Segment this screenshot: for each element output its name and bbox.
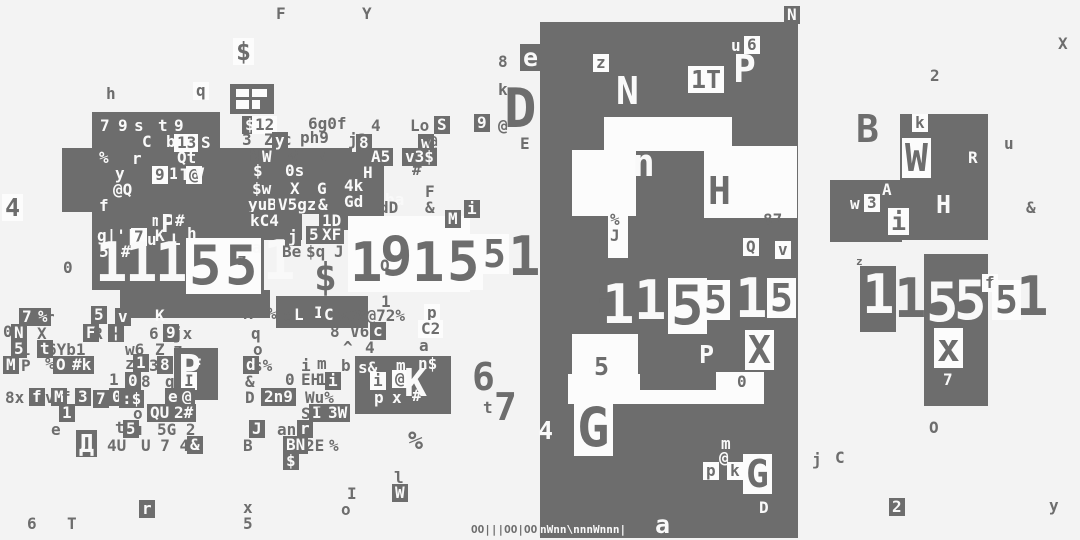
glyph: 0 bbox=[285, 372, 295, 388]
glyph: n bbox=[632, 144, 655, 182]
blob-hole-rect bbox=[252, 89, 267, 97]
glyph: kC4 bbox=[247, 212, 282, 230]
glyph: t bbox=[483, 400, 493, 416]
glyph: Y bbox=[362, 6, 372, 22]
glyph: D bbox=[504, 82, 537, 136]
glyph: $ bbox=[283, 452, 299, 470]
glyph: 1 bbox=[59, 404, 75, 422]
glyph: @ bbox=[498, 118, 508, 134]
glyph: u bbox=[1004, 136, 1014, 152]
glyph: z bbox=[237, 252, 247, 268]
glyph: O bbox=[53, 356, 69, 374]
glyph: C bbox=[835, 450, 845, 466]
glyph: 2 bbox=[889, 498, 905, 516]
glyph: p bbox=[374, 390, 384, 406]
glyph: nWnn\nnnWnnn| bbox=[540, 524, 626, 535]
glyph: U 7 4 bbox=[141, 438, 189, 454]
glyph: 7 bbox=[494, 388, 517, 426]
glyph: V bbox=[195, 166, 205, 182]
glyph: 87 bbox=[763, 212, 782, 228]
glyph: 0s bbox=[282, 162, 307, 180]
glyph: s% bbox=[253, 358, 272, 374]
glyph: h bbox=[106, 86, 116, 102]
glyph: 1 bbox=[133, 354, 149, 372]
glyph: dD bbox=[379, 200, 398, 216]
glyph: Gd bbox=[344, 194, 363, 210]
glyph: 7 bbox=[943, 372, 953, 388]
glyph: R bbox=[243, 306, 253, 322]
glyph: C bbox=[142, 134, 152, 150]
glyph: 1 bbox=[1016, 270, 1049, 324]
glyph: Qt bbox=[177, 150, 196, 166]
glyph: j bbox=[812, 452, 822, 468]
glyph: O bbox=[929, 420, 939, 436]
glyph: 1 bbox=[109, 372, 119, 388]
glyph: z bbox=[593, 54, 609, 72]
glyph: 5 bbox=[767, 278, 796, 318]
glyph: e bbox=[520, 44, 541, 71]
glyph: 8 bbox=[330, 324, 340, 340]
glyph: A bbox=[882, 182, 892, 198]
glyph: Be bbox=[282, 244, 301, 260]
glyph: F bbox=[276, 6, 286, 22]
glyph: r bbox=[139, 500, 155, 518]
glyph: # bbox=[412, 388, 422, 404]
glyph: 3W bbox=[325, 404, 350, 422]
glyph: P bbox=[699, 342, 714, 367]
glyph: & bbox=[425, 200, 435, 216]
glyph: % bbox=[408, 428, 423, 453]
glyph: 0 bbox=[737, 374, 747, 390]
glyph: 9 bbox=[380, 230, 413, 284]
glyph: 1 bbox=[95, 236, 128, 290]
glyph: #k bbox=[69, 356, 94, 374]
glyph: 1T bbox=[688, 66, 724, 93]
glyph: % bbox=[329, 438, 339, 454]
glyph: N bbox=[616, 72, 639, 110]
glyph: 1 bbox=[155, 236, 188, 290]
glyph: p bbox=[703, 462, 719, 480]
glyph: 5 bbox=[186, 238, 225, 294]
glyph: i bbox=[464, 200, 480, 218]
glyph: H bbox=[708, 172, 731, 210]
glyph: P bbox=[178, 350, 201, 388]
glyph: k bbox=[727, 462, 743, 480]
glyph: K bbox=[155, 308, 165, 324]
glyph: 3 bbox=[75, 388, 91, 406]
glyph: # bbox=[172, 212, 188, 230]
glyph: R bbox=[316, 148, 326, 164]
glyph: Lo bbox=[410, 118, 429, 134]
glyph: b bbox=[341, 358, 351, 374]
glyph: x bbox=[934, 328, 963, 368]
glyph: 4 bbox=[2, 194, 23, 221]
glyph: r bbox=[129, 150, 145, 168]
glyph: 1 bbox=[412, 236, 445, 290]
glyph: q bbox=[193, 82, 209, 100]
glyph: 1 bbox=[602, 278, 635, 332]
glyph: $ bbox=[250, 162, 266, 180]
glyph: Q bbox=[743, 238, 759, 256]
glyph: ^ bbox=[343, 340, 353, 356]
glyph: e bbox=[51, 422, 61, 438]
glyph: $ bbox=[233, 38, 254, 65]
glyph: 5 bbox=[243, 516, 253, 532]
glyph: 5 bbox=[91, 306, 107, 324]
glitch-canvas: FY$NX2hq8ekD@E9uBkWRu6PzN1T79st9Cb13S%rQ… bbox=[0, 0, 1080, 540]
glyph: 6 bbox=[27, 516, 37, 532]
glyph: X bbox=[1058, 36, 1068, 52]
glyph: 7 bbox=[100, 118, 110, 134]
glyph: 2n9 bbox=[261, 388, 296, 406]
glyph: $ bbox=[314, 258, 337, 296]
glyph: T bbox=[67, 516, 77, 532]
glyph: 9 bbox=[152, 166, 168, 184]
glyph: & bbox=[1026, 200, 1036, 216]
glyph: w bbox=[850, 196, 860, 212]
blob-hole-rect bbox=[572, 150, 636, 216]
glyph: M bbox=[445, 210, 461, 228]
glyph: L bbox=[291, 306, 307, 324]
glyph: J bbox=[610, 228, 620, 244]
glyph: G bbox=[743, 454, 772, 494]
glyph: 6 bbox=[472, 358, 495, 396]
glyph: y bbox=[1049, 498, 1059, 514]
glyph: S bbox=[198, 134, 214, 152]
glyph: D bbox=[759, 500, 769, 516]
glyph: 7 bbox=[93, 390, 109, 408]
blob-hole-rect bbox=[236, 89, 249, 97]
glyph: k bbox=[912, 114, 928, 132]
glyph: % bbox=[267, 306, 277, 322]
glyph: 1 bbox=[894, 272, 927, 326]
glyph: E bbox=[520, 136, 530, 152]
glyph: X bbox=[745, 330, 774, 370]
glyph: a bbox=[419, 338, 429, 354]
glyph: 9 bbox=[118, 118, 128, 134]
glyph: 3 bbox=[864, 194, 880, 212]
glyph: 4 bbox=[365, 340, 375, 356]
glyph: 1 bbox=[125, 236, 158, 290]
glyph: B bbox=[243, 438, 253, 454]
glyph: W bbox=[902, 138, 931, 178]
glyph: G bbox=[574, 400, 613, 456]
glyph: D bbox=[245, 390, 255, 406]
glyph: R bbox=[93, 326, 103, 342]
glyph: % bbox=[99, 150, 109, 166]
glyph: 2E bbox=[305, 438, 324, 454]
glyph: ph9 bbox=[300, 130, 329, 146]
glyph: M bbox=[3, 356, 19, 374]
glyph: 4 bbox=[371, 118, 381, 134]
glyph: o bbox=[341, 502, 351, 518]
glyph: & bbox=[187, 436, 203, 454]
glyph: 1 bbox=[508, 230, 541, 284]
glyph: 1 bbox=[634, 274, 667, 328]
glyph: v bbox=[775, 241, 791, 259]
glyph: 1 bbox=[350, 236, 383, 290]
glyph: 4U bbox=[107, 438, 126, 454]
glyph: Д bbox=[76, 430, 97, 457]
glyph: 4 bbox=[538, 418, 553, 443]
glyph: S bbox=[434, 116, 450, 134]
glyph: W bbox=[392, 484, 408, 502]
glyph: ¦ bbox=[108, 324, 124, 342]
blob-hole-rect bbox=[236, 100, 249, 109]
glyph: 0 bbox=[63, 260, 73, 276]
glyph: a bbox=[655, 512, 670, 537]
glyph: a bbox=[252, 240, 262, 256]
glyph: 8 bbox=[141, 374, 151, 390]
glyph: 1 bbox=[862, 268, 895, 322]
glyph: @Q bbox=[113, 182, 132, 198]
blob-hole-rect bbox=[252, 100, 260, 109]
glyph: 5 bbox=[480, 234, 509, 274]
glyph: f bbox=[99, 198, 109, 214]
glyph: P bbox=[733, 50, 756, 88]
glyph: N bbox=[784, 6, 800, 24]
glyph: 5 bbox=[701, 280, 730, 320]
glyph: 8x bbox=[5, 390, 24, 406]
glyph: 5 bbox=[444, 234, 483, 290]
glyph: x bbox=[392, 390, 402, 406]
glyph: 2 bbox=[930, 68, 940, 84]
glyph: f bbox=[29, 388, 45, 406]
glyph: H bbox=[936, 192, 951, 217]
glyph: 8 bbox=[498, 54, 508, 70]
glyph: P bbox=[21, 358, 31, 374]
glyph: 9 bbox=[474, 114, 490, 132]
glyph: i bbox=[888, 208, 909, 235]
glyph: 5 bbox=[594, 354, 609, 379]
glyph: 1 bbox=[735, 272, 768, 326]
glyph: B bbox=[856, 110, 879, 148]
glyph: 0 bbox=[125, 372, 141, 390]
glyph: # bbox=[412, 162, 422, 178]
glyph: R bbox=[968, 150, 978, 166]
